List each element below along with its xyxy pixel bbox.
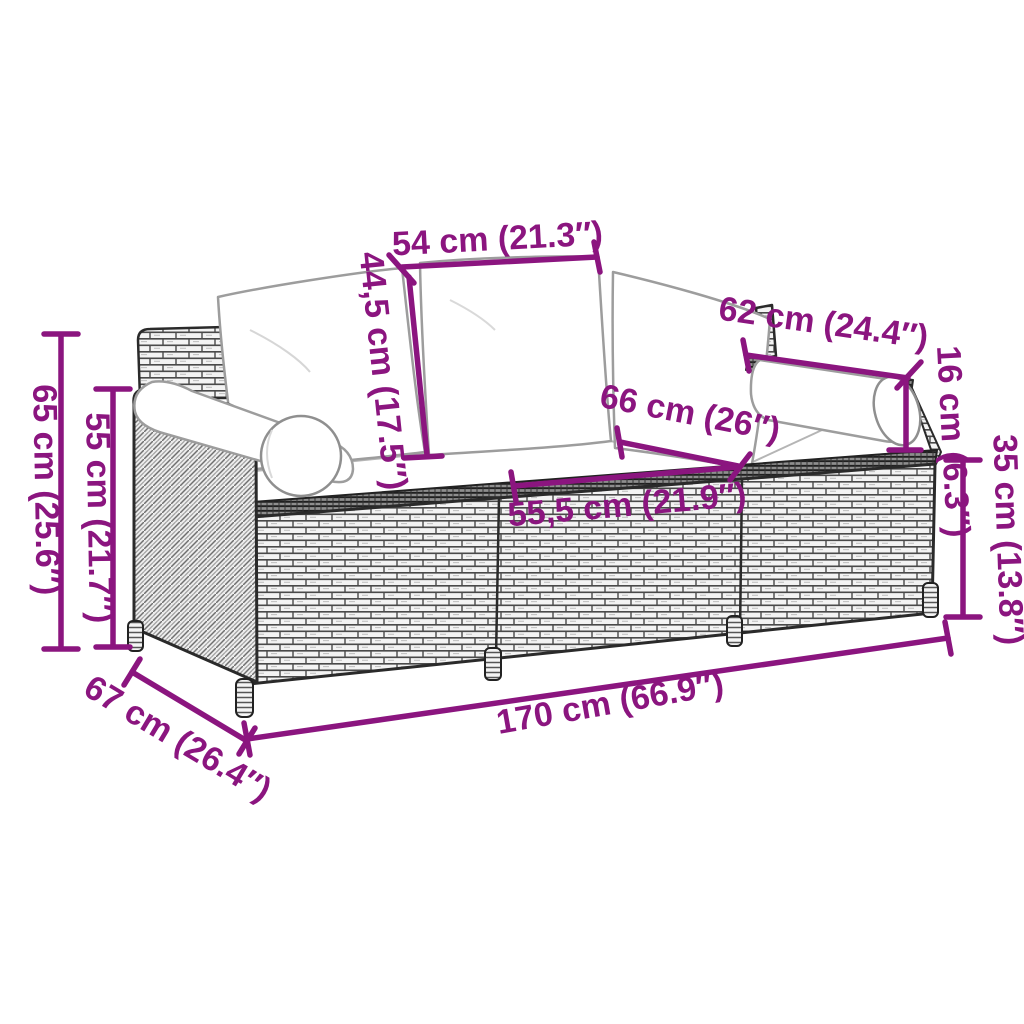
diagram-canvas: 54 cm (21.3″) 44,5 cm (17.5″) 62 cm (24.…: [0, 0, 1024, 1024]
back-cushion-middle: [420, 256, 611, 455]
dimension-tick: [945, 622, 951, 654]
left-bolster-cap: [261, 416, 341, 496]
leg-front-right: [727, 616, 742, 646]
dimension-label-seat-height: 35 cm (13.8″): [985, 434, 1024, 646]
dimension-label-bolster-diameter: 16 cm (6.3″): [929, 345, 977, 539]
dimension-tick: [124, 659, 140, 685]
dimension-label-armrest-height: 55 cm (21.7″): [78, 412, 120, 624]
dimension-diagram: 54 cm (21.3″) 44,5 cm (17.5″) 62 cm (24.…: [0, 0, 1024, 1024]
leg-front-middle: [485, 648, 501, 680]
dimension-label-total-length: 170 cm (66.9″): [494, 664, 727, 741]
dimension-label-total-height: 65 cm (25.6″): [25, 384, 67, 596]
dimension-tick: [244, 723, 250, 755]
leg-far-right: [923, 583, 938, 617]
leg-front-left: [236, 679, 253, 717]
